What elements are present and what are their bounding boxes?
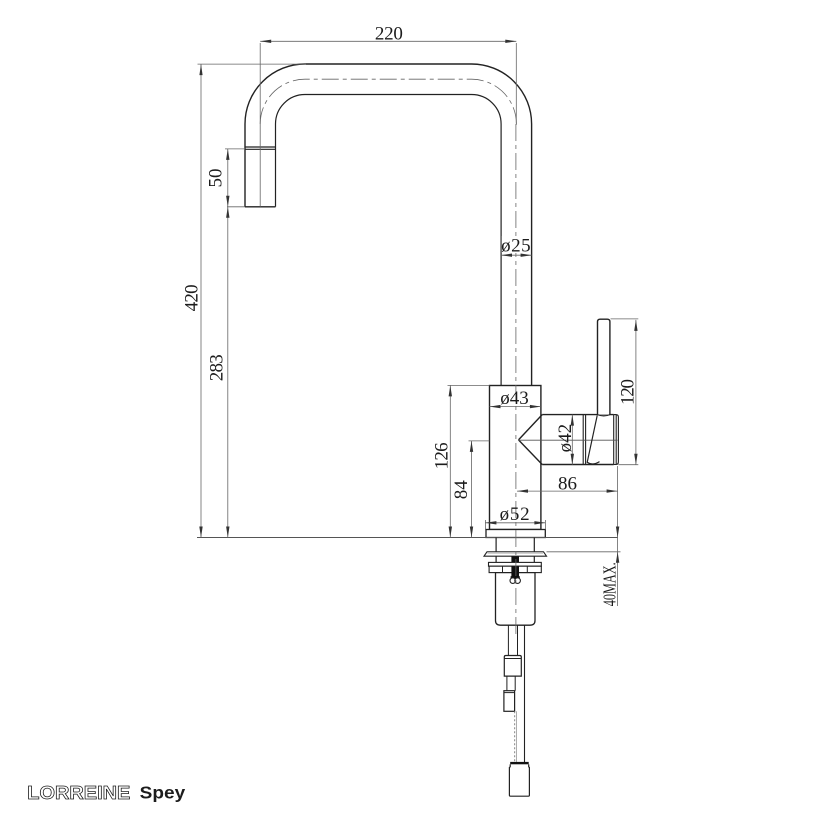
svg-text:ø52: ø52 xyxy=(500,504,530,525)
svg-text:ø43: ø43 xyxy=(500,388,529,409)
svg-text:ø25: ø25 xyxy=(501,236,531,257)
svg-text:LORREINE: LORREINE xyxy=(27,782,130,803)
svg-text:84: 84 xyxy=(451,480,472,500)
svg-text:283: 283 xyxy=(207,354,228,381)
svg-text:40MAX.: 40MAX. xyxy=(599,562,619,606)
svg-text:420: 420 xyxy=(181,284,202,311)
svg-text:126: 126 xyxy=(431,442,452,469)
svg-text:220: 220 xyxy=(375,24,403,45)
svg-text:120: 120 xyxy=(618,379,639,405)
svg-text:50: 50 xyxy=(206,169,227,188)
svg-text:86: 86 xyxy=(558,473,577,494)
svg-text:Spey: Spey xyxy=(140,782,186,802)
svg-text:ø42: ø42 xyxy=(555,424,576,453)
